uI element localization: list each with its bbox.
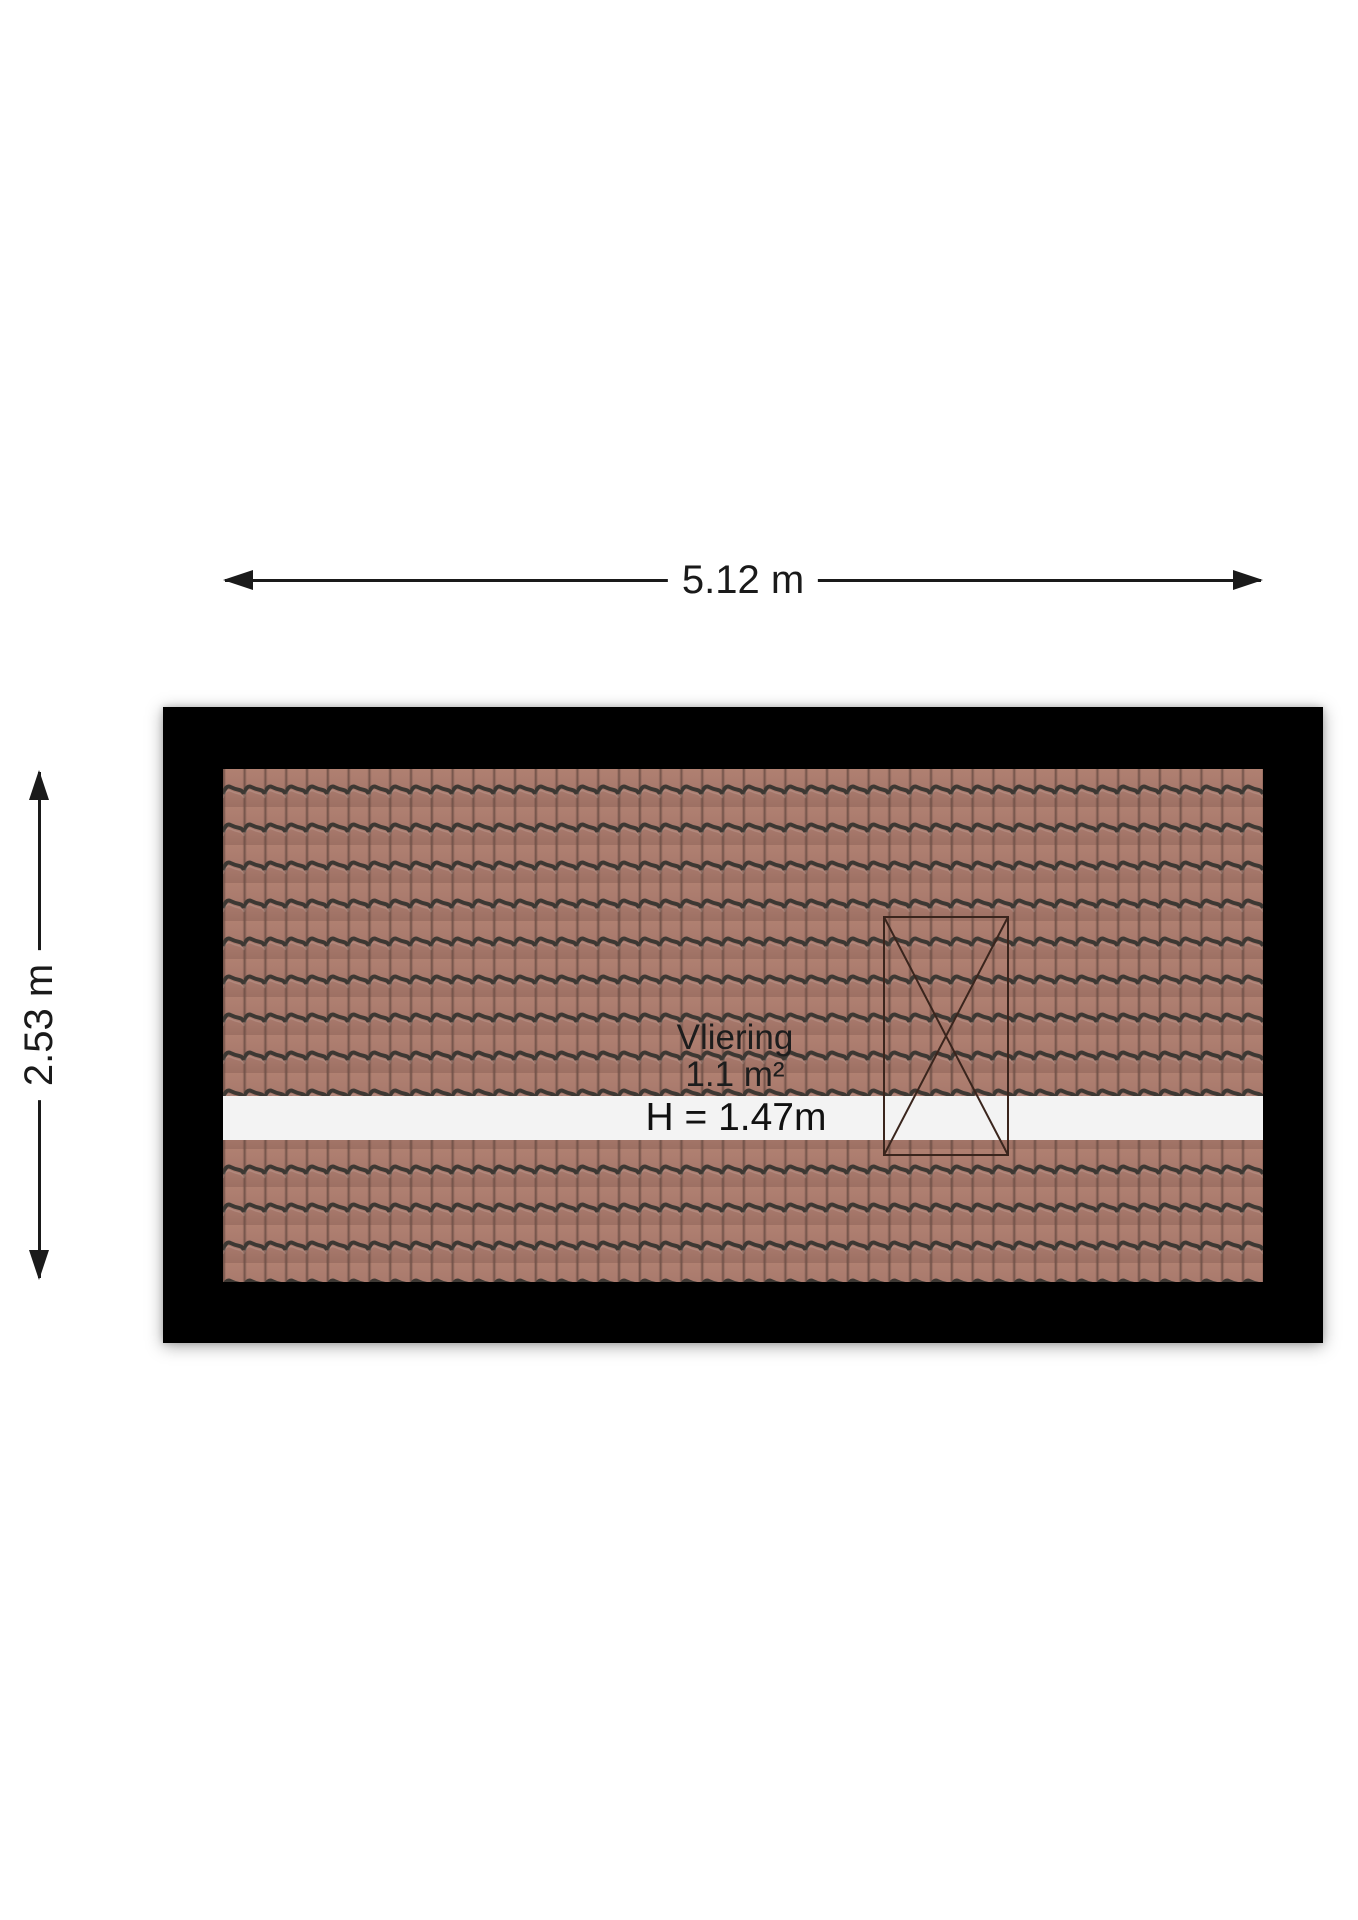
height-dimension: 2.53 m: [17, 770, 61, 1280]
room-label: Vliering 1.1 m²: [223, 1019, 1247, 1093]
arrow-up-icon: [29, 770, 49, 800]
width-dimension: 5.12 m: [223, 558, 1263, 602]
width-dimension-label: 5.12 m: [668, 558, 818, 602]
room-area-label: 1.1 m²: [223, 1056, 1247, 1093]
arrow-down-icon: [29, 1250, 49, 1280]
room-name-label: Vliering: [223, 1019, 1247, 1056]
roof-surface: Vliering 1.1 m² H = 1.47m: [223, 769, 1263, 1282]
arrow-left-icon: [223, 570, 253, 590]
room-height-label: H = 1.47m: [223, 1096, 1249, 1140]
attic-floorplan: Vliering 1.1 m² H = 1.47m: [163, 707, 1323, 1343]
height-dimension-label: 2.53 m: [17, 950, 61, 1100]
arrow-right-icon: [1233, 570, 1263, 590]
floorplan-page: 5.12 m 2.53 m: [0, 0, 1358, 1920]
